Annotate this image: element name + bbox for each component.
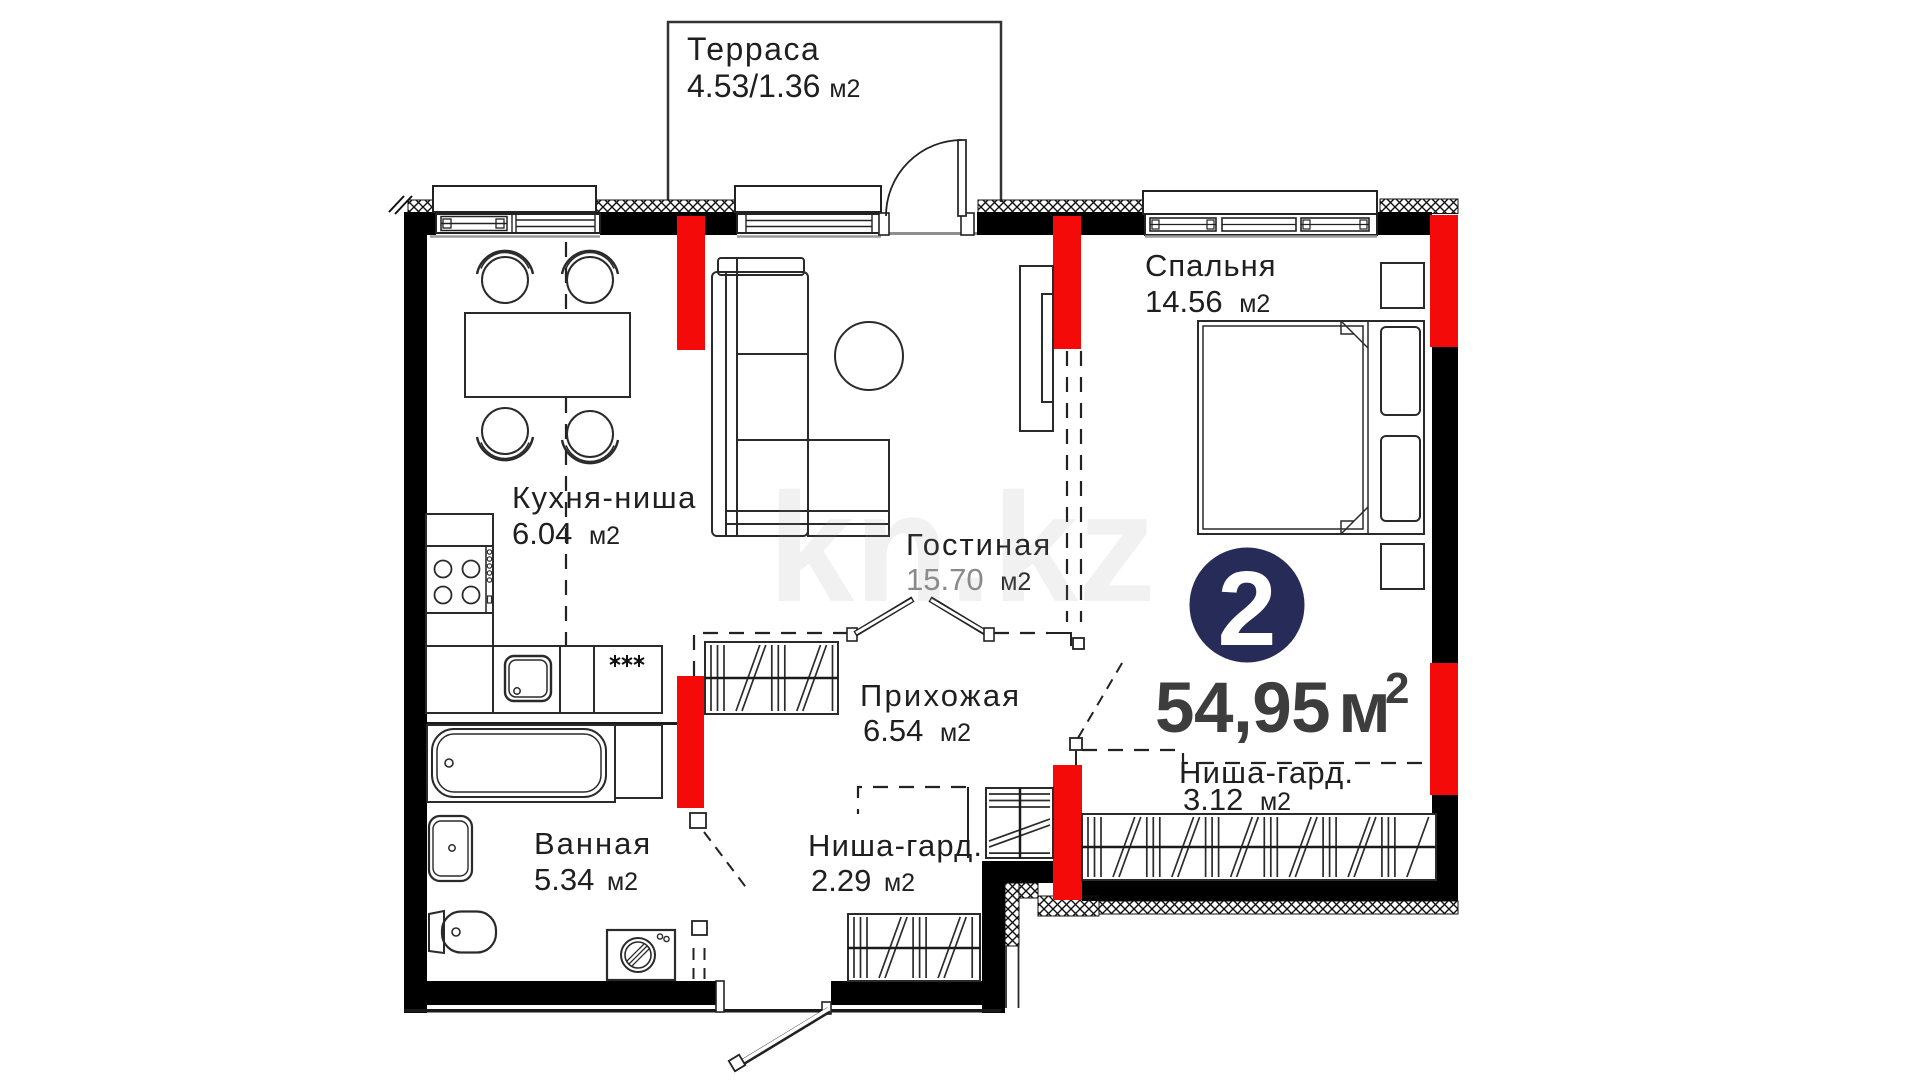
svg-text:Спальня: Спальня [1145, 248, 1277, 283]
svg-text:54,95м: 54,95м [1155, 669, 1390, 748]
svg-text:Кухня-ниша: Кухня-ниша [512, 480, 697, 515]
svg-text:Прихожая: Прихожая [860, 678, 1021, 713]
svg-text:2: 2 [1218, 550, 1277, 668]
svg-text:Терраса: Терраса [687, 31, 820, 67]
svg-text:6.04 м2: 6.04 м2 [512, 516, 620, 551]
svg-text:2: 2 [1385, 664, 1409, 713]
svg-text:Ниша-гард.: Ниша-гард. [808, 828, 983, 863]
svg-text:5.34 м2: 5.34 м2 [534, 862, 638, 897]
svg-text:14.56 м2: 14.56 м2 [1145, 284, 1270, 319]
svg-text:6.54 м2: 6.54 м2 [863, 713, 971, 748]
svg-text:kn.kz: kn.kz [768, 461, 1156, 634]
svg-text:3.12 м2: 3.12 м2 [1183, 782, 1291, 817]
svg-text:2.29 м2: 2.29 м2 [811, 863, 915, 898]
svg-text:Ванная: Ванная [534, 826, 652, 861]
